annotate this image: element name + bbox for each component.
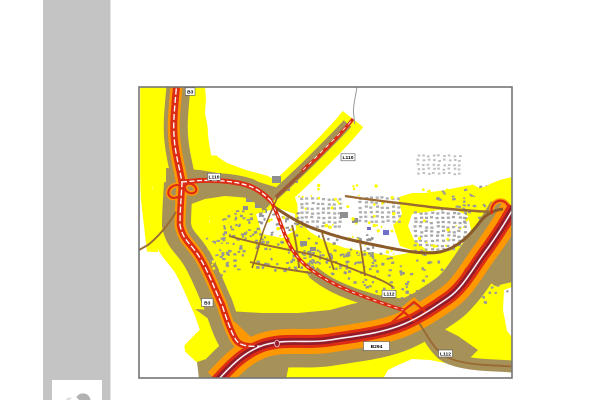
svg-text:L112: L112 [384, 292, 395, 298]
svg-text:B3: B3 [204, 300, 211, 306]
svg-text:B294: B294 [371, 344, 383, 350]
svg-text:L112: L112 [440, 351, 451, 357]
svg-text:B3: B3 [187, 90, 194, 96]
svg-text:L110: L110 [209, 175, 220, 181]
svg-text:L110: L110 [343, 155, 354, 161]
